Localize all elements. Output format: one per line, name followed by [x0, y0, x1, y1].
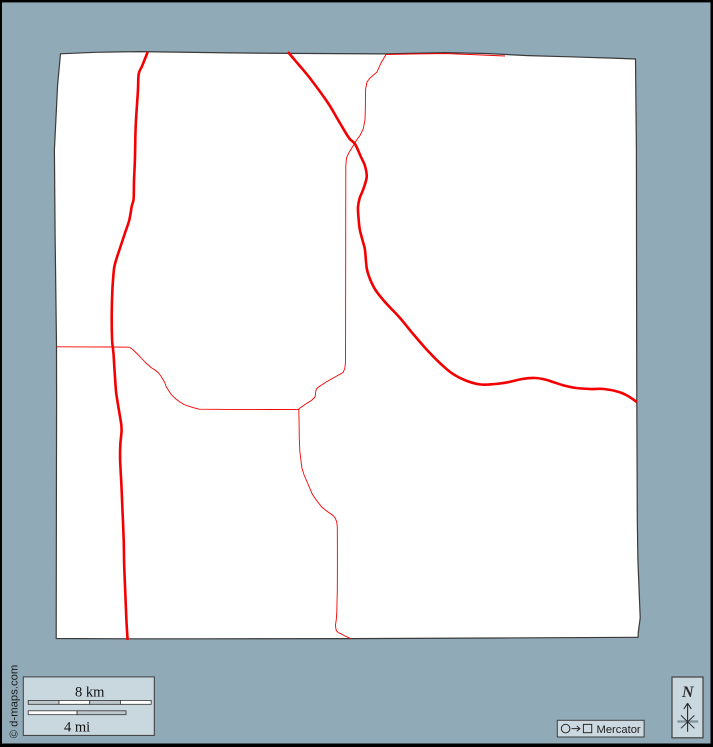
svg-text:8 km: 8 km	[75, 685, 105, 701]
svg-text:4 mi: 4 mi	[64, 720, 90, 736]
svg-text:Mercator: Mercator	[597, 724, 641, 736]
svg-text:N: N	[681, 684, 695, 701]
svg-text:© d-maps.com: © d-maps.com	[9, 665, 21, 739]
